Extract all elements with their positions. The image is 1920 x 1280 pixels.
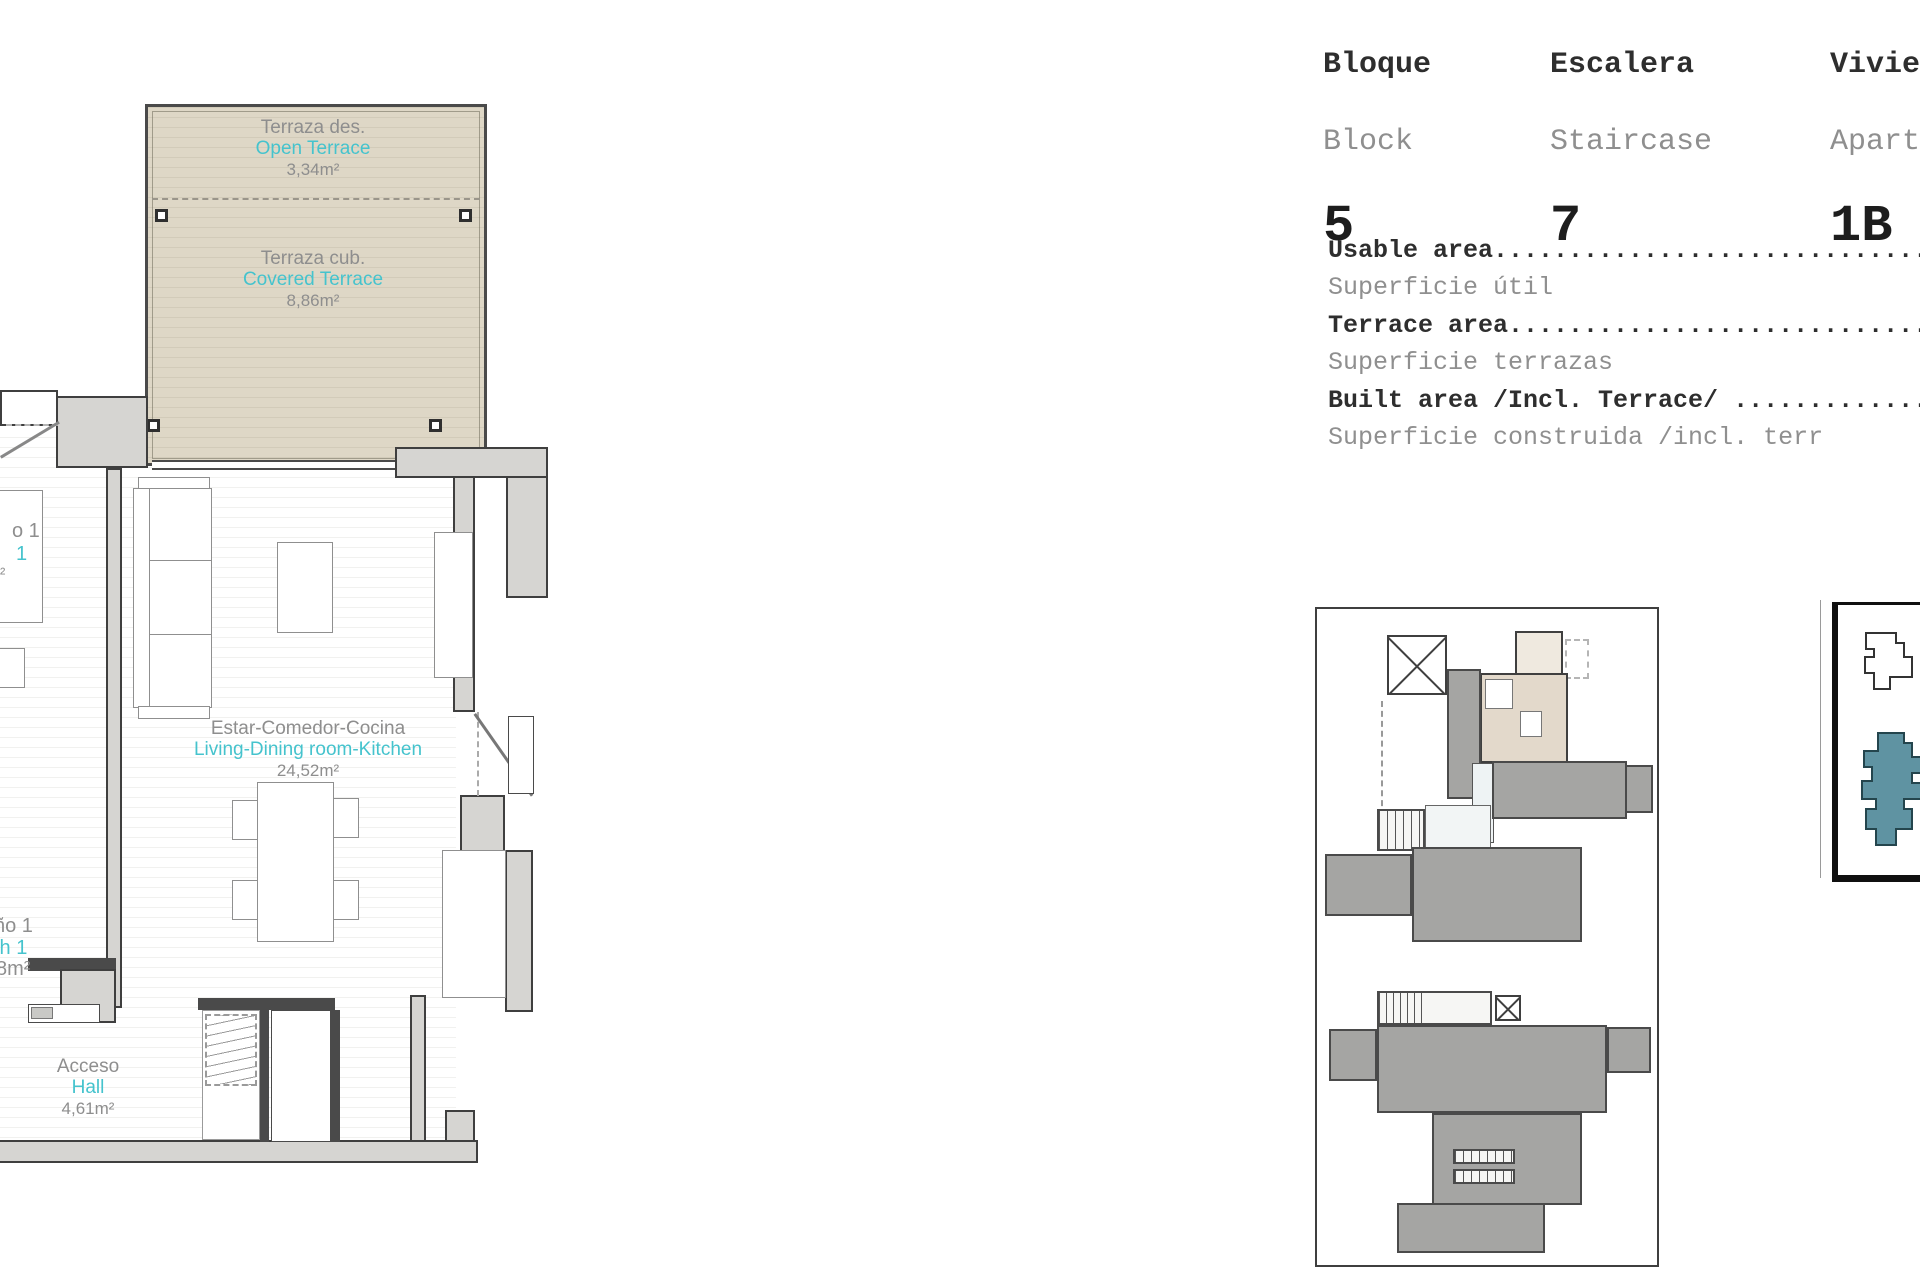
subject-unit-terrace-dashed	[1565, 639, 1589, 679]
terrace-post	[459, 209, 472, 222]
terrace-divider-dashed-line	[152, 198, 480, 200]
room-name-es: Estar-Comedor-Cocina	[158, 718, 458, 739]
room-area: 4,61m²	[8, 1098, 168, 1119]
entrance-door-panel	[508, 716, 534, 794]
sofa-seat	[149, 488, 212, 562]
key-unit-mass	[1492, 761, 1627, 819]
bedroom-closet-lintel	[0, 390, 58, 426]
wall-right-mid	[460, 795, 505, 853]
room-area: 8,86m²	[163, 290, 463, 311]
wall-top-left	[56, 396, 148, 468]
subject-unit-body	[1480, 673, 1568, 763]
coffee-table	[277, 542, 333, 633]
key-staircase	[1453, 1169, 1515, 1184]
dining-chair	[232, 800, 258, 840]
tv-cabinet	[434, 532, 473, 678]
wall-hall-right	[410, 995, 426, 1143]
room-name-en: Hall	[8, 1077, 168, 1098]
block-label-es: Bloque	[1323, 48, 1431, 82]
terrace-post	[147, 419, 160, 432]
label-bath-fragment-en: th 1	[0, 938, 27, 958]
terrace-post	[155, 209, 168, 222]
wall-top-right-band	[395, 447, 548, 478]
wall-bedroom-divider	[106, 468, 122, 1008]
key-unit-mass	[1625, 765, 1653, 813]
site-building-highlight	[1862, 733, 1920, 845]
sofa-seat	[149, 634, 212, 708]
subject-unit-room	[1520, 711, 1542, 737]
staircase-label-es: Escalera	[1550, 48, 1712, 82]
key-unit-mass	[1329, 1029, 1377, 1081]
sofa-seat	[149, 560, 212, 636]
dining-chair	[232, 880, 258, 920]
kitchen-counter	[442, 850, 506, 998]
key-unit-mass	[1412, 847, 1582, 942]
site-mini-map	[1832, 602, 1920, 882]
key-staircase	[1453, 1149, 1515, 1164]
wall-hall-mid2	[331, 1010, 340, 1142]
wall-hall-top	[198, 998, 335, 1010]
built-area-row-es: Superficie construida /incl. terr	[1328, 423, 1823, 452]
label-living-dining-kitchen: Estar-Comedor-Cocina Living-Dining room-…	[158, 718, 458, 781]
room-area: 3,34m²	[163, 159, 463, 180]
dining-table	[257, 782, 334, 942]
subject-unit-room	[1485, 679, 1513, 709]
minimap-margin-line	[1820, 600, 1821, 878]
built-area-row: Built area /Incl. Terrace/ .............…	[1328, 386, 1920, 415]
room-name-es: Acceso	[8, 1056, 168, 1077]
key-shaft-small	[1495, 995, 1521, 1021]
terrace-area-row-es: Superficie terrazas	[1328, 348, 1613, 377]
site-building-outline	[1865, 633, 1912, 689]
staircase-label-en: Staircase	[1550, 125, 1712, 159]
label-open-terrace: Terraza des. Open Terrace 3,34m²	[163, 117, 463, 180]
label-bath-fragment-area: 8m²	[0, 959, 30, 979]
hall-door-panel	[271, 1010, 331, 1142]
key-property-dashed-line	[1381, 701, 1383, 826]
room-area: 24,52m²	[158, 760, 458, 781]
room-name-en: Open Terrace	[163, 138, 463, 159]
key-lobby	[1425, 805, 1491, 853]
nightstand	[0, 648, 25, 688]
label-hall: Acceso Hall 4,61m²	[8, 1056, 168, 1119]
entrance-door-swing-dashed	[477, 712, 479, 796]
label-bedroom-fragment-es: o 1	[12, 521, 40, 541]
wall-hall-mid	[260, 1010, 269, 1142]
bathroom-sink	[31, 1007, 53, 1019]
label-covered-terrace: Terraza cub. Covered Terrace 8,86m²	[163, 248, 463, 311]
building-key-plan	[1315, 607, 1659, 1267]
label-bedroom-fragment-area: ²	[0, 565, 5, 585]
wall-right-outer	[506, 476, 548, 598]
wall-kitchen-outer	[505, 850, 533, 1012]
dining-chair	[333, 798, 359, 838]
wall-bottom-step	[445, 1110, 475, 1143]
room-name-en: Living-Dining room-Kitchen	[158, 739, 458, 760]
usable-area-row: Usable area.............................…	[1328, 236, 1920, 265]
label-bedroom-fragment-en: 1	[16, 544, 27, 564]
room-name-es: Terraza cub.	[163, 248, 463, 269]
key-mid-lobby	[1377, 991, 1492, 1025]
key-unit-mass	[1377, 1025, 1607, 1113]
label-bath-fragment-es: ño 1	[0, 916, 33, 936]
dining-chair	[333, 880, 359, 920]
shaft-box	[1387, 635, 1447, 695]
key-unit-mass	[1325, 854, 1412, 916]
key-unit-mass	[1397, 1203, 1545, 1253]
wall-bottom	[0, 1140, 478, 1163]
hall-wardrobe-hatch	[205, 1014, 257, 1086]
usable-area-row-es: Superficie útil	[1328, 273, 1553, 302]
site-map-graphic	[1838, 605, 1920, 865]
terrace-area-row: Terrace area............................…	[1328, 311, 1920, 340]
key-unit-mass	[1607, 1027, 1651, 1073]
terrace-post	[429, 419, 442, 432]
apartment-label-en: Apart	[1830, 125, 1920, 159]
room-name-es: Terraza des.	[163, 117, 463, 138]
plan-sheet: Terraza des. Open Terrace 3,34m² Terraza…	[0, 0, 1920, 1280]
key-staircase	[1377, 809, 1425, 851]
apartment-label-es: Vivie	[1830, 48, 1920, 82]
room-name-en: Covered Terrace	[163, 269, 463, 290]
block-label-en: Block	[1323, 125, 1431, 159]
